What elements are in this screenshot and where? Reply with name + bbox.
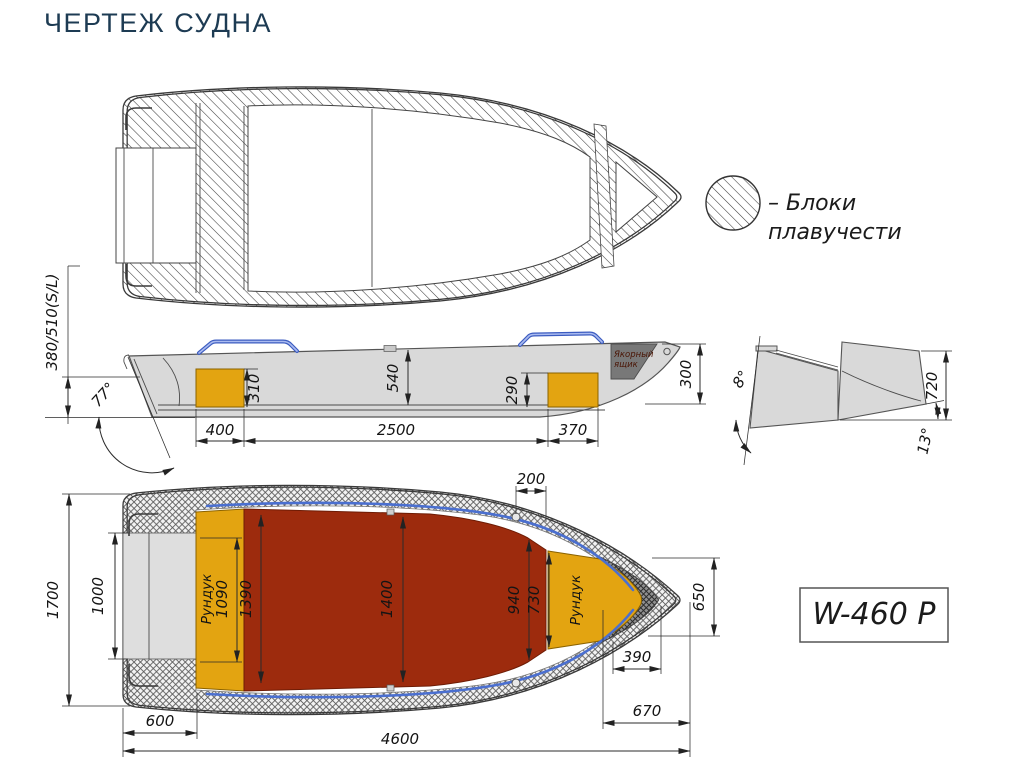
legend-text-line1: – Блоки [768, 191, 856, 216]
legend-text-line2: плавучести [768, 220, 902, 245]
plan-view-stern-section [123, 533, 196, 659]
dim-stern-section-length: 600 [146, 712, 175, 730]
dim-bow-locker-height: 290 [503, 376, 521, 405]
dim-floor-width-fwd: 940 [505, 586, 523, 615]
dim-aft-locker-length: 400 [206, 421, 235, 439]
dim-transom-inner-width: 1000 [89, 577, 107, 615]
anchor-box-label-line2: ящик [614, 360, 639, 370]
dim-floor-width-mid: 1400 [378, 580, 396, 618]
dim-aft-locker-width: 1090 [213, 580, 231, 618]
dim-gunwale-gap: 200 [517, 470, 546, 488]
dim-beam: 1700 [44, 581, 62, 619]
anchor-box-label-line1: Якорный [613, 350, 654, 360]
dim-cockpit-depth: 540 [384, 364, 402, 393]
model-badge: W-460 P [800, 588, 948, 642]
side-view-aft-locker [196, 369, 244, 407]
gunwale-cap [756, 346, 777, 351]
dim-bow-length: 670 [633, 702, 662, 720]
dim-deadrise-angle: 13° [914, 426, 937, 456]
deck-fitting [384, 346, 396, 352]
top-view [116, 87, 681, 307]
buoyancy-hatch-symbol [706, 176, 760, 230]
dim-transom-height: 720 [923, 372, 941, 401]
dim-bow-section-length: 650 [690, 583, 708, 612]
dim-bow-locker-width: 730 [525, 586, 543, 615]
plan-view: 1700 1000 Рундук 1090 1390 1400 940 730 … [44, 470, 720, 757]
dim-bow-locker-length: 390 [623, 648, 652, 666]
dim-bow-height: 300 [677, 360, 695, 389]
model-badge-label: W-460 P [812, 597, 936, 632]
dim-freeboard: 380/510(S/L) [43, 274, 61, 371]
drawing-canvas: ЧЕРТЕЖ СУДНА [0, 0, 1032, 784]
dim-floor-width-aft: 1390 [237, 580, 255, 618]
dim-overall-length: 4600 [381, 730, 419, 748]
dim-bow-locker-length: 370 [559, 421, 588, 439]
transom-right-panel [838, 342, 926, 420]
top-view-stern-well [116, 148, 196, 263]
dim-aft-locker-height: 310 [245, 374, 263, 403]
side-view-bow-locker [548, 373, 598, 407]
top-view-cockpit [248, 105, 590, 292]
dim-cockpit-length: 2500 [377, 421, 415, 439]
legend-buoyancy-blocks: – Блоки плавучести [706, 176, 902, 245]
bow-locker-label: Рундук [568, 574, 584, 625]
boat-drawing: – Блоки плавучести Якорный ящик [0, 0, 1032, 784]
dim-transom-angle: 77° [88, 379, 119, 411]
aft-handle [199, 342, 297, 354]
bow-eye-fitting [664, 348, 670, 354]
dim-flare-angle: 8° [729, 367, 753, 391]
transom-left-panel [750, 349, 838, 428]
transom-view: 720 13° 8° [729, 336, 952, 465]
